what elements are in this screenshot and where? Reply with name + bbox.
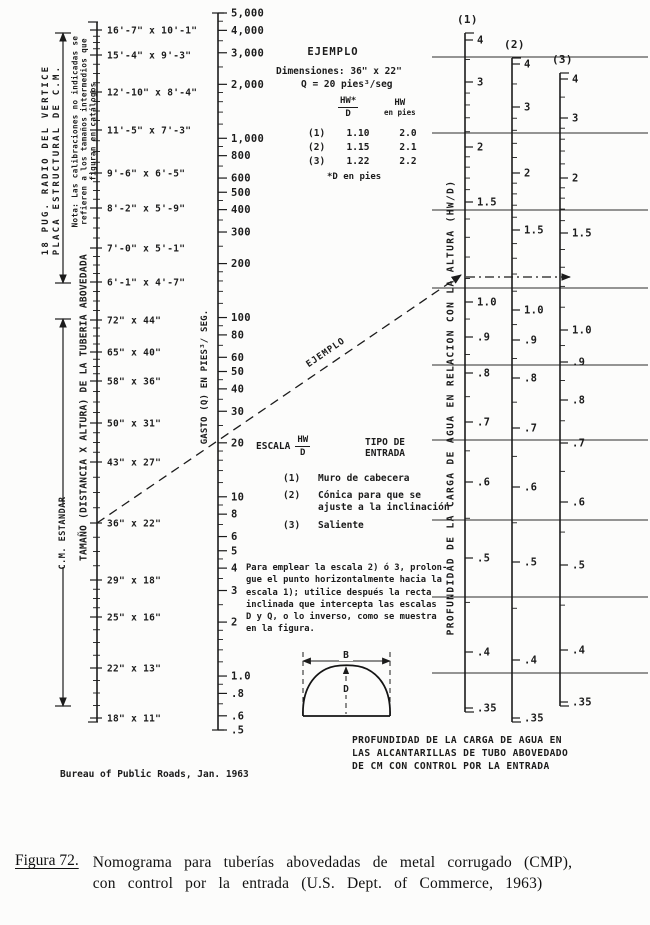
size-tick-label: 50" x 31" [107, 419, 161, 430]
hw-tick-label: .5 [524, 557, 537, 569]
size-axis-label: TAMAÑO (DISTANCIA X ALTURA) DE LA TUBERI… [79, 193, 90, 623]
hw-tick-label: 1.0 [477, 297, 497, 309]
hw-tick-label: .8 [524, 373, 537, 385]
hw-tick-label: .6 [524, 482, 537, 494]
entrance-row: (2) Cónica para que se ajuste a la incli… [283, 490, 468, 513]
example-table: (1) 1.10 2.0 (2) 1.15 2.1 (3) 1.22 2.2 [308, 126, 438, 168]
example-row: (3) 1.22 2.2 [308, 154, 438, 168]
size-tick-label: 25" x 16" [107, 613, 161, 624]
example-discharge: Q = 20 pies³/seg [301, 79, 393, 90]
q-tick-label: 100 [231, 312, 251, 324]
example-footnote: *D en pies [327, 172, 381, 182]
hw-header-text: HW [394, 98, 405, 108]
figure-label: Figura 72. [15, 852, 79, 894]
hw-tick-label: .35 [524, 713, 544, 725]
entrance-row: (3) Saliente [283, 520, 468, 532]
q-tick-label: 40 [231, 383, 244, 395]
nomograph-canvas: 16'-7" x 10'-1"15'-4" x 9'-3"12'-10" x 8… [0, 0, 650, 800]
hw-tick-label: 1.5 [572, 228, 592, 240]
q-tick-label: 3 [231, 585, 238, 597]
hw-header-unit: en pies [384, 108, 416, 118]
entrance-row: (1) Muro de cabecera [283, 473, 468, 485]
hwd-fraction: HW D [295, 435, 310, 458]
hw-tick-label: 2 [524, 168, 531, 180]
q-tick-label: 5,000 [231, 8, 264, 20]
entrance-label: Muro de cabecera [318, 473, 468, 485]
hw-tick-label: 2 [477, 142, 484, 154]
q-tick-label: 800 [231, 150, 251, 162]
hw-tick-label: .6 [477, 477, 490, 489]
hw-scale-header: (2) [504, 38, 525, 51]
example-scale-num: (3) [308, 156, 334, 167]
hw-tick-label: .4 [524, 655, 537, 667]
hw-tick-label: .8 [477, 368, 490, 380]
hwd-numerator: HW* [338, 96, 358, 108]
hw-scale-header: (1) [457, 13, 478, 26]
q-tick-label: 1.0 [231, 671, 251, 683]
structural-plate-range-label: 18 PUG. RADIO DEL VERTICE PLACA ESTRUCTU… [41, 40, 63, 280]
q-tick-label: 1,000 [231, 133, 264, 145]
entrance-num: (2) [283, 490, 318, 513]
example-scale-num: (1) [308, 128, 334, 139]
usage-instructions: Para emplear la escala 2) ó 3, prolon- g… [246, 562, 462, 636]
hw-tick-label: 1.0 [524, 305, 544, 317]
entrance-type-header: TIPO DE ENTRADA [345, 437, 425, 459]
escala-word: ESCALA [256, 441, 290, 452]
source-credit: Bureau of Public Roads, Jan. 1963 [60, 769, 249, 780]
q-tick-label: 300 [231, 227, 251, 239]
size-tick-label: 16'-7" x 10'-1" [107, 26, 197, 37]
size-tick-label: 36" x 22" [107, 519, 161, 530]
size-tick-label: 65" x 40" [107, 348, 161, 359]
hw-tick-label: 1.5 [524, 225, 544, 237]
hw-scale-header: (3) [552, 53, 573, 66]
example-title: EJEMPLO [283, 46, 383, 58]
size-tick-label: 6'-1" x 4'-7" [107, 278, 185, 289]
hw-tick-label: 3 [572, 113, 579, 125]
q-tick-label: 600 [231, 173, 251, 185]
q-axis-label: GASTO (Q) EN PIES³/ SEG. [200, 292, 210, 462]
size-tick-label: 18" x 11" [107, 714, 161, 725]
q-tick-label: .6 [231, 710, 244, 722]
entrance-num: (3) [283, 520, 318, 532]
q-tick-label: 10 [231, 491, 244, 503]
q-tick-label: 30 [231, 406, 244, 418]
example-dimensions: Dimensiones: 36" x 22" [276, 66, 402, 77]
size-tick-label: 12'-10" x 8'-4" [107, 88, 197, 99]
size-tick-label: 15'-4" x 9'-3" [107, 51, 191, 62]
hw-tick-label: 4 [572, 74, 579, 86]
q-tick-label: 20 [231, 437, 244, 449]
hw-tick-label: .4 [477, 647, 490, 659]
q-tick-label: 5 [231, 545, 238, 557]
hw-tick-label: .35 [572, 697, 592, 709]
size-tick-label: 58" x 36" [107, 377, 161, 388]
hw-tick-label: .4 [572, 645, 585, 657]
hw-tick-label: 1.0 [572, 325, 592, 337]
hw-tick-label: .6 [572, 497, 585, 509]
size-tick-label: 11'-5" x 7'-3" [107, 126, 191, 137]
example-hwd-value: 1.22 [338, 156, 378, 167]
q-tick-label: 200 [231, 258, 251, 270]
hw-tick-label: .8 [572, 395, 585, 407]
hw-tick-label: 3 [524, 102, 531, 114]
q-tick-label: 80 [231, 329, 244, 341]
hw-tick-label: 3 [477, 77, 484, 89]
q-tick-label: 6 [231, 531, 238, 543]
arch-rise-label: D [340, 684, 352, 695]
q-tick-label: 3,000 [231, 47, 264, 59]
q-tick-label: 8 [231, 509, 238, 521]
hw-tick-label: .7 [524, 423, 537, 435]
size-tick-label: 8'-2" x 5'-9" [107, 204, 185, 215]
q-tick-label: 4 [231, 563, 238, 575]
hw-tick-label: .5 [572, 560, 585, 572]
arch-span-label: B [339, 650, 353, 661]
size-tick-label: 43" x 27" [107, 458, 161, 469]
entrance-label: Cónica para que se ajuste a la inclinaci… [318, 490, 468, 513]
figure-page: 16'-7" x 10'-1"15'-4" x 9'-3"12'-10" x 8… [0, 0, 650, 925]
hw-tick-label: 2 [572, 173, 579, 185]
hwd-fraction-top: HW [295, 435, 310, 447]
size-tick-label: 22" x 13" [107, 664, 161, 675]
figure-text: Nomograma para tuberías abovedadas de me… [93, 852, 572, 894]
example-row: (2) 1.15 2.1 [308, 140, 438, 154]
hw-tick-label: .9 [524, 335, 537, 347]
example-hwd-value: 1.15 [338, 142, 378, 153]
hw-tick-label: .7 [477, 417, 490, 429]
example-row: (1) 1.10 2.0 [308, 126, 438, 140]
hwd-denominator: D [345, 108, 350, 119]
example-scale-num: (2) [308, 142, 334, 153]
q-tick-label: 500 [231, 187, 251, 199]
hw-tick-label: .7 [572, 438, 585, 450]
q-tick-label: .5 [231, 725, 244, 737]
entrance-label: Saliente [318, 520, 468, 532]
q-tick-label: 4,000 [231, 25, 264, 37]
q-tick-label: 50 [231, 366, 244, 378]
size-tick-label: 7'-0" x 5'-1" [107, 244, 185, 255]
size-tick-label: 72" x 44" [107, 316, 161, 327]
example-header-hw: HW en pies [384, 98, 416, 118]
hw-tick-label: .35 [477, 703, 497, 715]
example-hw-value: 2.1 [390, 142, 426, 153]
hw-tick-label: 1.5 [477, 197, 497, 209]
hw-tick-label: .9 [572, 357, 585, 369]
q-tick-label: 2,000 [231, 79, 264, 91]
q-tick-label: 60 [231, 352, 244, 364]
example-header-hwd: HW* D [338, 96, 358, 119]
q-tick-label: 2 [231, 617, 238, 629]
example-hwd-value: 1.10 [338, 128, 378, 139]
hwd-fraction-bottom: D [300, 447, 305, 458]
hw-tick-label: .5 [477, 553, 490, 565]
cm-standard-range-label: C.M. ESTANDAR [58, 475, 68, 591]
figure-caption: Figura 72. Nomograma para tuberías above… [15, 852, 643, 894]
example-line [97, 275, 461, 523]
example-hw-value: 2.0 [390, 128, 426, 139]
hw-tick-label: .9 [477, 332, 490, 344]
entrance-scale-header: ESCALA HW D [256, 435, 310, 458]
chart-title: PROFUNDIDAD DE LA CARGA DE AGUA EN LAS A… [352, 734, 568, 774]
entrance-num: (1) [283, 473, 318, 485]
size-tick-label: 29" x 18" [107, 576, 161, 587]
q-tick-label: .8 [231, 688, 244, 700]
size-tick-label: 9'-6" x 6'-5" [107, 169, 185, 180]
hw-tick-label: 4 [524, 59, 531, 71]
q-tick-label: 400 [231, 204, 251, 216]
hw-tick-label: 4 [477, 35, 484, 47]
example-hw-value: 2.2 [390, 156, 426, 167]
